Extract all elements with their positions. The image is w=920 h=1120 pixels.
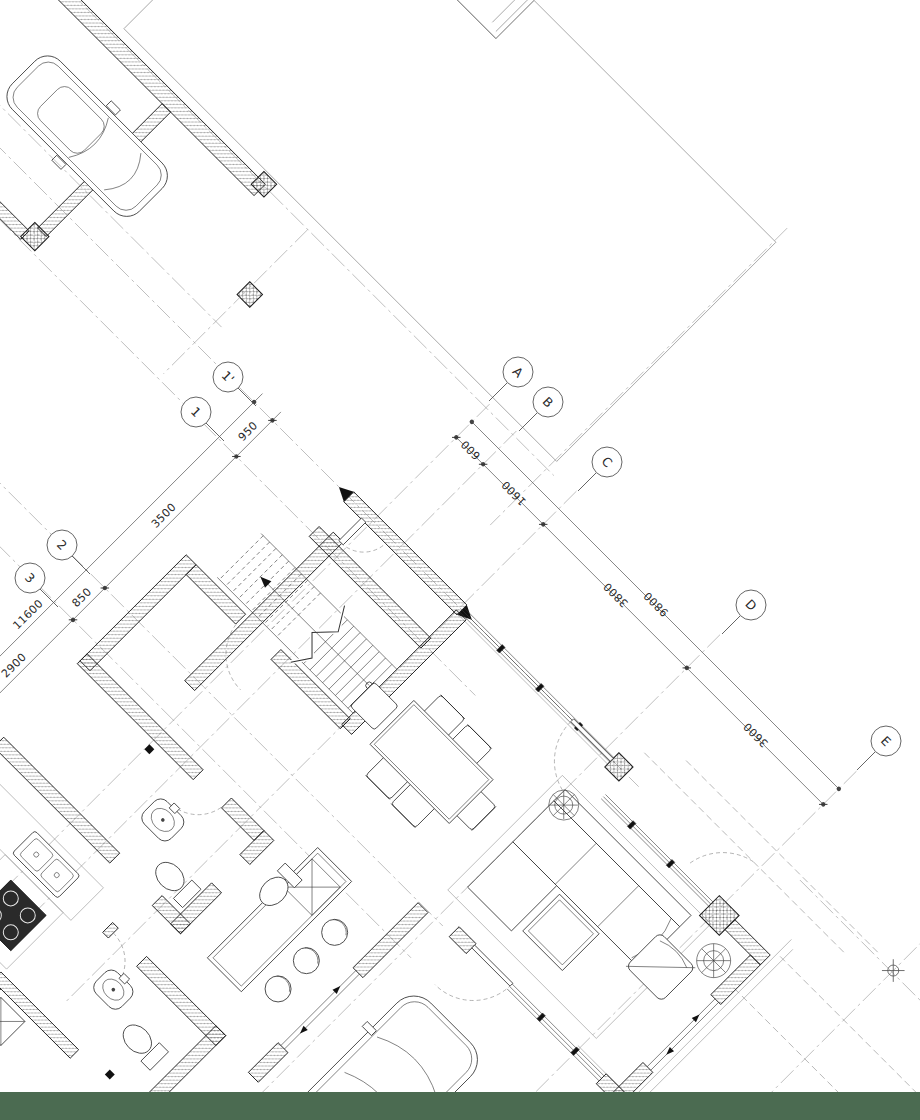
west-wall-lower (80, 555, 196, 671)
grid-bubble-E: E (857, 726, 901, 770)
stair-north-wall (309, 526, 431, 648)
grid-bubble-1: 1 (181, 397, 224, 441)
dim-label: 3600 (741, 720, 771, 750)
stair-south-wall (186, 565, 245, 624)
dim-label: 600 (458, 437, 483, 462)
floor-plan-sheet: 950 3500 850 2900 11600 600 1600 3800 36… (0, 0, 920, 1120)
dimension-chain-horizontal: 600 1600 3800 3600 9800 (451, 414, 847, 810)
living-room (448, 775, 743, 1070)
door-swing-arc (435, 947, 511, 1023)
north-entry-wall (344, 492, 467, 615)
dim-label: 850 (69, 585, 94, 610)
washbasin (138, 792, 190, 844)
toilet (117, 1019, 169, 1071)
cooktop (0, 880, 46, 951)
dimension-chain-vertical: 950 3500 850 2900 11600 (0, 382, 283, 737)
kitchen (0, 642, 378, 1120)
garage-block (0, 0, 561, 624)
column-marker (144, 744, 154, 754)
courtyard-wall-lower (248, 1043, 288, 1083)
door-leaf (571, 719, 613, 761)
grid-bubbles: 1 1' 2 3 A B C D (15, 357, 901, 770)
title-bar (0, 1092, 920, 1120)
door-leaf (472, 945, 513, 986)
dim-label: 2900 (0, 650, 29, 680)
south-wall-pier (449, 927, 476, 954)
courtyard-wall (353, 903, 428, 978)
deck-steps-corner (439, 0, 534, 39)
dim-label: 3500 (149, 500, 179, 530)
door-swing-arc (531, 722, 610, 801)
grid-bubble-B: B (519, 387, 563, 431)
column-marker (105, 1070, 115, 1080)
dining-set (322, 655, 524, 857)
courtyard-sliding-door (279, 968, 362, 1051)
grid-bubble-1p: 1' (213, 362, 256, 406)
washbasin (90, 963, 139, 1012)
east-wall (711, 955, 760, 1004)
car (0, 43, 180, 230)
toilet (149, 856, 201, 908)
column (237, 282, 262, 307)
dim-label: 11600 (10, 597, 45, 632)
bath-north-wall (77, 654, 203, 780)
dim-label: 3800 (601, 580, 631, 610)
dim-label: 1600 (499, 478, 529, 508)
grid-bubble-2: 2 (47, 530, 90, 574)
double-sink (12, 831, 80, 899)
grid-bubble-D: D (722, 590, 766, 634)
deck-area (124, 0, 776, 461)
east-sliding-door (645, 997, 721, 1073)
dim-label: 9800 (641, 589, 671, 619)
west-wall (185, 532, 343, 690)
dim-label: 950 (236, 419, 261, 444)
garage-porch-wall (0, 170, 29, 239)
terrace-door-arc (688, 831, 753, 896)
floor-plan-canvas: 950 3500 850 2900 11600 600 1600 3800 36… (0, 0, 920, 1120)
grid-bubble-C: C (578, 447, 622, 491)
grid-bubble-A: A (489, 357, 533, 401)
entry-door-leaf (339, 518, 366, 545)
